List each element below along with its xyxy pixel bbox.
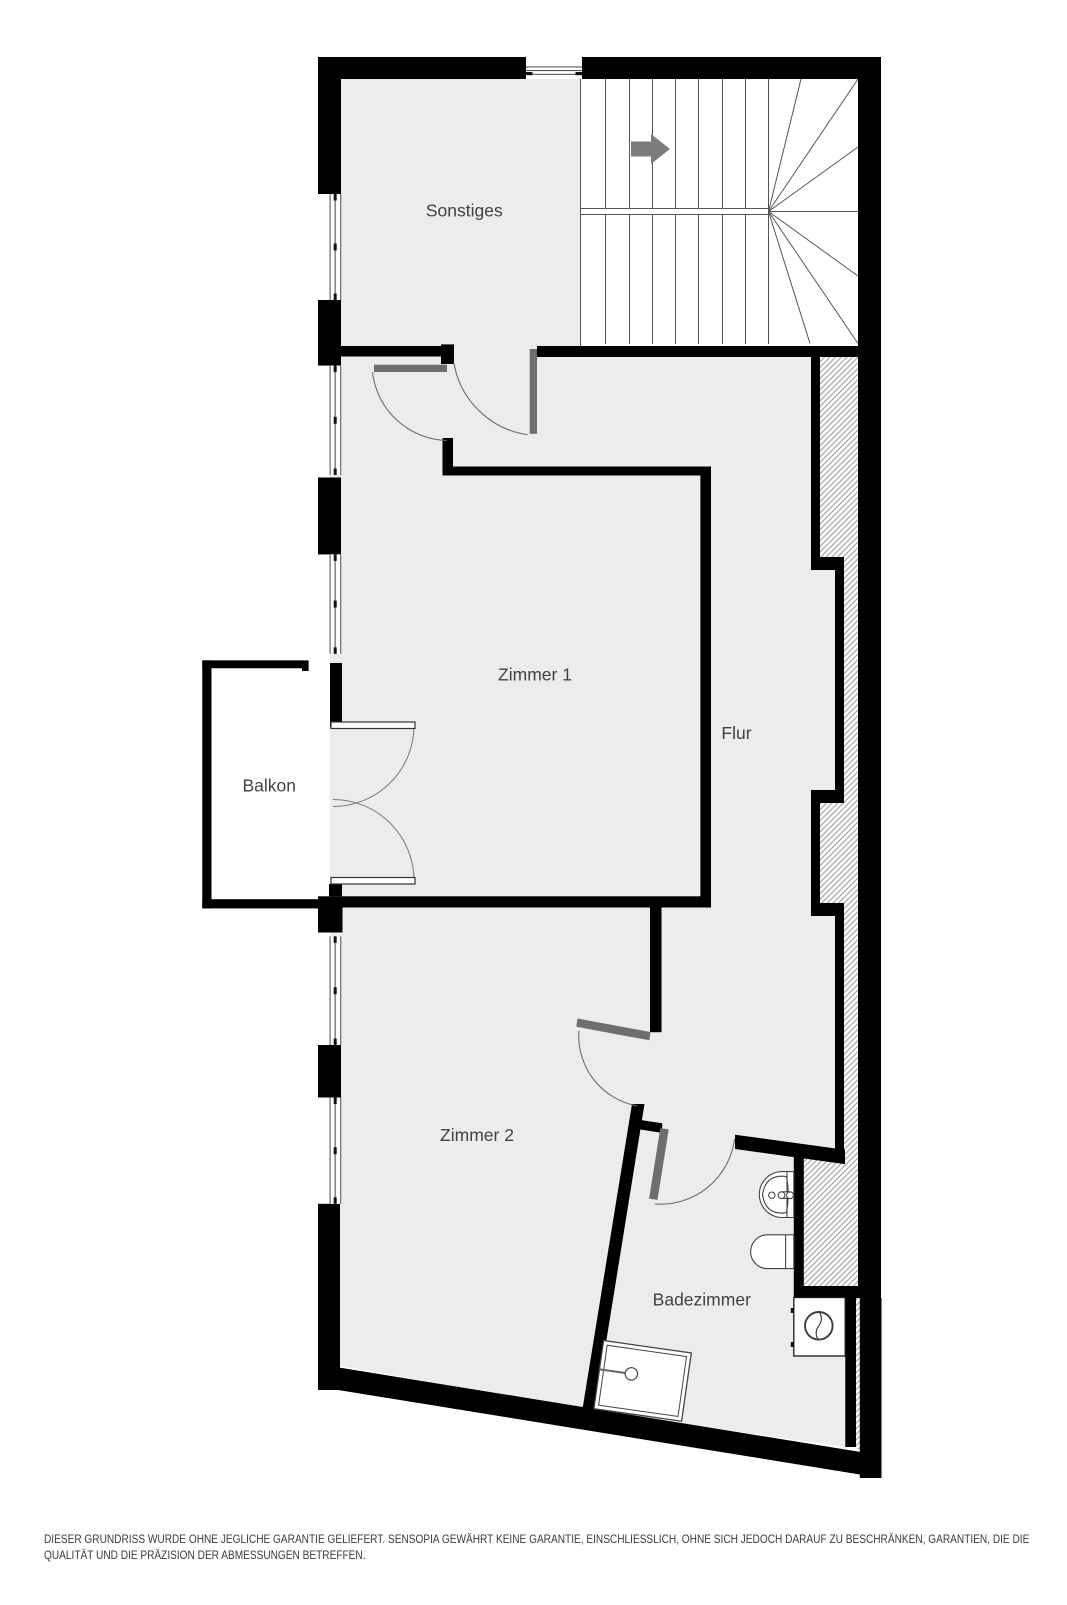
svg-text:Badezimmer: Badezimmer (653, 1290, 751, 1310)
svg-text:Flur: Flur (721, 723, 751, 743)
svg-text:Zimmer 1: Zimmer 1 (498, 665, 572, 685)
svg-text:Sonstiges: Sonstiges (426, 201, 503, 221)
svg-text:Zimmer 2: Zimmer 2 (440, 1125, 514, 1145)
svg-text:Balkon: Balkon (242, 776, 296, 796)
